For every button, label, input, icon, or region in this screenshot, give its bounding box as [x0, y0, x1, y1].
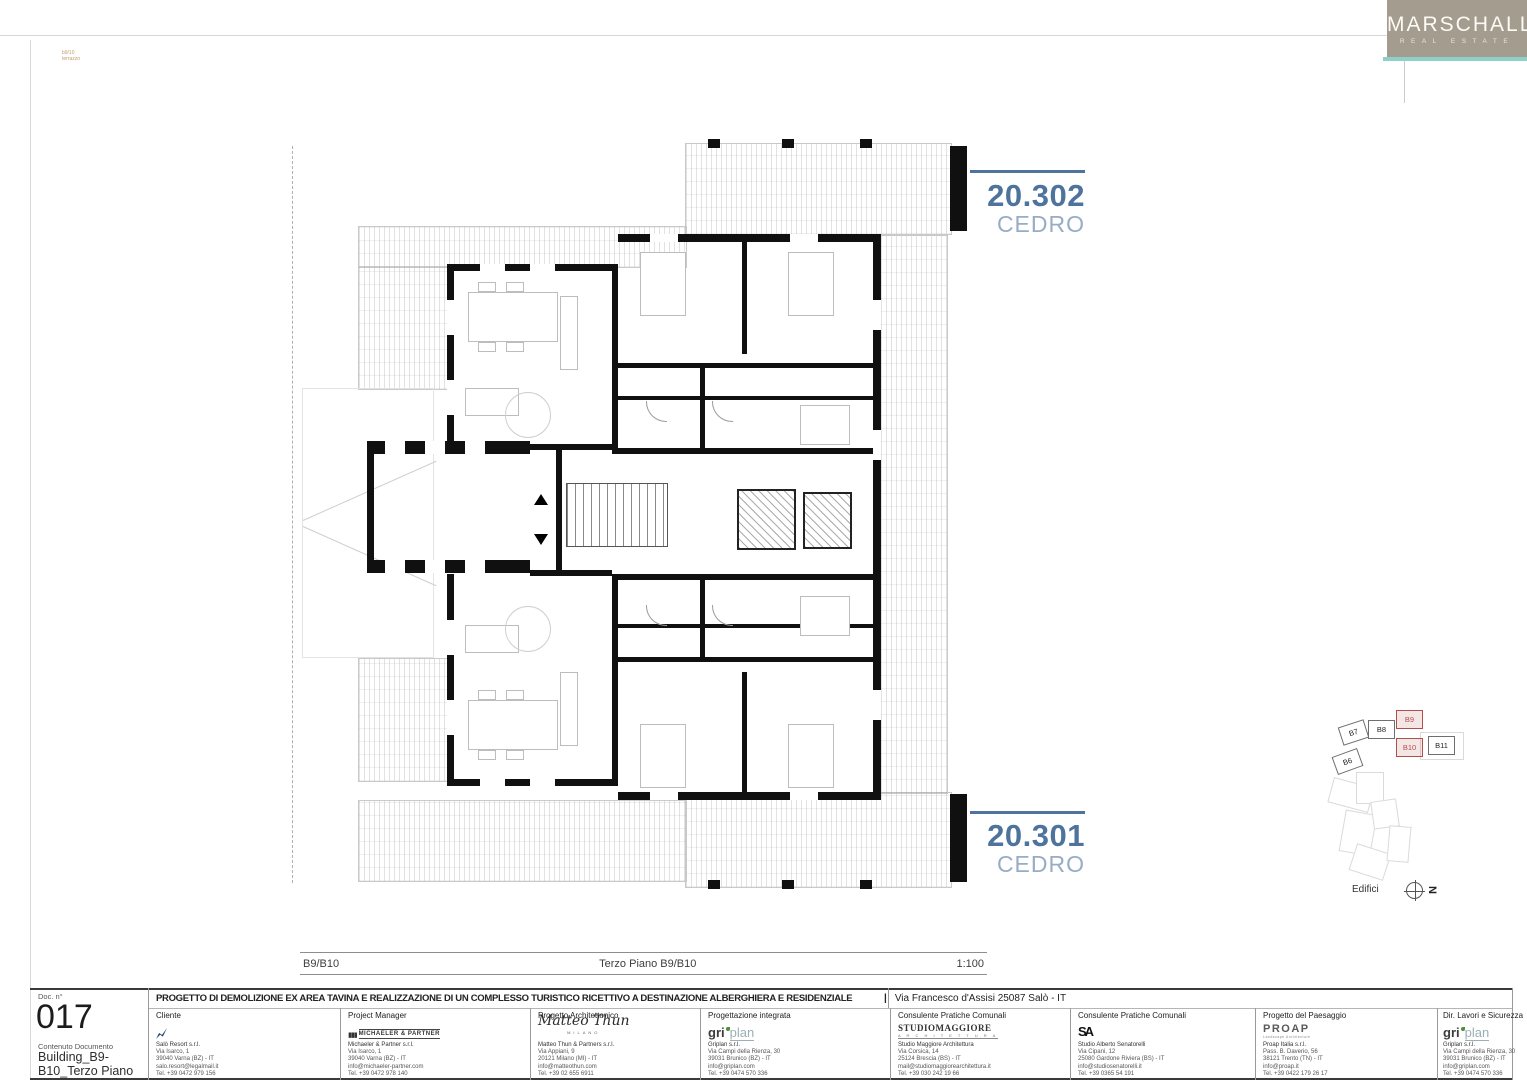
address-line: 38121 Trento (TN) - IT [1263, 1056, 1433, 1063]
window-gap [385, 441, 405, 454]
chair [478, 690, 496, 700]
rug [505, 392, 551, 438]
chair [506, 690, 524, 700]
org-name: Griplan s.r.l. [708, 1042, 886, 1049]
titleblock-separator [890, 1008, 891, 1080]
consultant-column-pratiche-2: Consulente Pratiche Comunali SA Studio A… [1078, 1011, 1250, 1078]
unit-code: 20.302 [977, 178, 1085, 214]
chimney [708, 139, 720, 148]
north-compass-icon [1406, 882, 1423, 899]
window-gap [480, 779, 505, 786]
org-name: Michaeler & Partner s.r.l. [348, 1042, 526, 1049]
address-line: 20121 Milano (MI) - IT [538, 1056, 696, 1063]
wall [612, 574, 881, 580]
column-role: Progettazione integrata [708, 1011, 886, 1020]
site-building-label: B11 [1435, 741, 1448, 750]
window-gap [650, 234, 678, 242]
address-line: Via Appiani, 9 [538, 1049, 696, 1056]
address-line: salo.resort@legalmail.it [156, 1064, 336, 1071]
staircase [566, 483, 668, 547]
chimney [860, 880, 872, 889]
org-name: Proap Italia s.r.l. [1263, 1042, 1433, 1049]
elevator-shaft [803, 492, 852, 549]
roof-hatch [358, 658, 449, 782]
window-gap [465, 441, 485, 454]
wall [742, 672, 747, 800]
address-line: 39040 Varna (BZ) - IT [156, 1056, 336, 1063]
address-line: Via Cipani, 12 [1078, 1049, 1250, 1056]
address-line: Via Isarco, 1 [348, 1049, 526, 1056]
wall [447, 264, 454, 448]
site-building-outline [1386, 825, 1411, 863]
consultant-column-paesaggio: Progetto del Paesaggio PROAPLandscape Ar… [1263, 1011, 1433, 1078]
address-line: Via Campi della Rienza, 30 [708, 1049, 886, 1056]
studiomaggiore-logo: STUDIOMAGGIOREA R C H I T E T T U R A [898, 1023, 998, 1039]
chair [478, 750, 496, 760]
wall [742, 234, 747, 354]
proap-logo: PROAPLandscape Architecture [1263, 1023, 1311, 1039]
bed [640, 724, 686, 788]
address-line: Via Corsica, 14 [898, 1049, 1066, 1056]
site-building-b6: B6 [1332, 748, 1364, 775]
address-line: info@griplan.com [708, 1064, 886, 1071]
bed [788, 724, 834, 788]
address-line: info@matteothun.com [538, 1064, 696, 1071]
wall [530, 570, 612, 576]
site-building-outline [1356, 772, 1384, 804]
window-gap [425, 441, 445, 454]
roof-hatch [358, 266, 449, 390]
terrace-end-wall [950, 146, 967, 231]
michaeler-logo-icon: ▮▮▮ [348, 1031, 357, 1039]
wall [447, 574, 454, 786]
griplan-logo: griplan [1443, 1027, 1489, 1039]
chimney [782, 880, 794, 889]
column-role: Cliente [156, 1011, 336, 1020]
address-line: Via Campi della Rienza, 30 [1443, 1049, 1509, 1056]
rug [505, 606, 551, 652]
bed [788, 252, 834, 316]
bed [640, 252, 686, 316]
chimney [708, 880, 720, 889]
chimney [860, 139, 872, 148]
chair [506, 282, 524, 292]
project-title-divider: | [884, 993, 887, 1004]
doc-number: 017 [36, 998, 93, 1037]
titleblock-separator [1070, 1008, 1071, 1080]
wall [618, 396, 873, 400]
callout-line [970, 170, 1085, 173]
project-title: PROGETTO DI DEMOLIZIONE EX AREA TAVINA E… [156, 993, 884, 1004]
titleblock-separator [530, 1008, 531, 1080]
site-building-label: B9 [1405, 715, 1414, 724]
michaeler-logo: MICHAELER & PARTNER [359, 1029, 440, 1039]
kitchen-counter [560, 296, 578, 370]
site-building-label: B6 [1342, 756, 1354, 768]
chair [478, 282, 496, 292]
site-building-label: B7 [1348, 727, 1360, 738]
consultant-column-cliente: Cliente Salò Resort s.r.l. Via Isarco, 1… [156, 1011, 336, 1078]
wall [612, 574, 618, 779]
window-gap [530, 264, 555, 271]
address-line: 25080 Gardone Riviera (BS) - IT [1078, 1056, 1250, 1063]
wall [700, 576, 705, 661]
titleblock-right-border [1512, 988, 1513, 1080]
griplan-logo: griplan [708, 1027, 754, 1039]
drawing-sheet: b9/10 terrazzo MARSCHALL REAL ESTATE [0, 0, 1527, 1080]
bed [800, 405, 850, 445]
column-role: Consulente Pratiche Comunali [1078, 1011, 1250, 1020]
kitchen-counter [560, 672, 578, 746]
address-line: Tel. +39 0474 570 336 [708, 1071, 886, 1078]
address-line: Tel. +39 0422 179 26 17 [1263, 1071, 1433, 1078]
address-line: Tel. +39 0472 979 156 [156, 1071, 336, 1078]
window-gap [480, 264, 505, 271]
scale-bar-center: Terzo Piano B9/B10 [599, 958, 696, 970]
site-building-label: B10 [1403, 743, 1416, 752]
direction-arrow-down [534, 534, 548, 545]
wall [618, 363, 873, 368]
unit-code: 20.301 [977, 818, 1085, 854]
content-value-line2: B10_Terzo Piano [38, 1064, 133, 1078]
roof-hatch [685, 792, 952, 888]
consultant-column-architetto: Progetto Architettonico Matteo ThunMILAN… [538, 1011, 696, 1078]
scale-bar: B9/B10 Terzo Piano B9/B10 1:100 [300, 952, 987, 975]
unit-name: CEDRO [977, 851, 1085, 878]
titleblock-separator [700, 1008, 701, 1080]
dining-table [468, 292, 558, 342]
window-gap [425, 560, 445, 573]
chair [478, 342, 496, 352]
window-gap [385, 560, 405, 573]
chair [506, 342, 524, 352]
wall [618, 657, 873, 662]
roof-hatch [685, 143, 952, 235]
address-line: mail@studiomaggiorearchitettura.it [898, 1064, 1066, 1071]
elevator-shaft [737, 489, 796, 550]
roof-hatch [358, 800, 687, 882]
address-line: Tel. +39 0474 570 336 [1443, 1071, 1509, 1078]
boundary-dashed-line [292, 146, 293, 883]
sheet-top-line [0, 35, 1387, 36]
door-arc [712, 401, 733, 422]
wall [530, 444, 612, 450]
address-line: Pass. B. Daverio, 56 [1263, 1049, 1433, 1056]
window-gap [650, 792, 678, 800]
org-name: Matteo Thun & Partners s.r.l. [538, 1042, 696, 1049]
column-role: Progetto del Paesaggio [1263, 1011, 1433, 1020]
titleblock-separator [1437, 1008, 1438, 1080]
dining-table [468, 700, 558, 750]
proap-logo-sub: Landscape Architecture [1263, 1035, 1311, 1039]
org-name: Salò Resort s.r.l. [156, 1042, 336, 1049]
callout-line [970, 811, 1085, 814]
window-gap [873, 300, 881, 330]
site-building-label: B8 [1377, 725, 1386, 734]
wall [556, 448, 562, 574]
window-gap [873, 430, 881, 460]
address-line: Tel. +39 0472 978 140 [348, 1071, 526, 1078]
org-name: Griplan s.r.l. [1443, 1042, 1509, 1049]
sa-monogram-logo: SA [1078, 1024, 1092, 1039]
studiomaggiore-logo-sub: A R C H I T E T T U R A [898, 1033, 998, 1039]
door-arc [646, 605, 667, 626]
site-map-caption: Edifici [1352, 884, 1379, 895]
window-gap [873, 690, 881, 720]
content-value-line1: Building_B9- [38, 1050, 109, 1064]
sheet-left-edge [30, 40, 31, 1080]
org-name: Studio Maggiore Architettura [898, 1042, 1066, 1049]
address-line: Via Isarco, 1 [156, 1049, 336, 1056]
titleblock-separator [340, 1008, 341, 1080]
window-gap [447, 700, 454, 735]
project-address: Via Francesco d'Assisi 25087 Salò - IT [895, 993, 1066, 1004]
door-arc [646, 401, 667, 422]
org-name: Studio Alberto Senatorelli [1078, 1042, 1250, 1049]
unit-label-top: 20.302 CEDRO [977, 178, 1085, 238]
address-line: Tel. +39 02 655 6911 [538, 1071, 696, 1078]
chair [506, 750, 524, 760]
column-role: Project Manager [348, 1011, 526, 1020]
brand-accent-bar [1383, 57, 1527, 61]
window-gap [447, 380, 454, 415]
address-line: info@proap.it [1263, 1064, 1433, 1071]
corner-stamp: b9/10 terrazzo [62, 50, 80, 62]
wall [612, 264, 618, 448]
brand-tagline: REAL ESTATE [1387, 38, 1527, 45]
window-gap [530, 779, 555, 786]
scale-bar-right: 1:100 [956, 958, 984, 970]
chimney [782, 139, 794, 148]
address-line: info@griplan.com [1443, 1064, 1509, 1071]
address-line: Tel. +39 0365 54 191 [1078, 1071, 1250, 1078]
corner-stamp-line2: terrazzo [62, 56, 80, 62]
sheet-fold-line [1404, 61, 1405, 103]
site-building-b10: B10 [1396, 738, 1423, 757]
bed [800, 596, 850, 636]
brand-name: MARSCHALL [1387, 13, 1527, 37]
address-line: Tel. +39 030 242 19 66 [898, 1071, 1066, 1078]
project-title-strip: PROGETTO DI DEMOLIZIONE EX AREA TAVINA E… [156, 988, 1506, 1008]
titleblock-strip-border [148, 1008, 1512, 1009]
column-role: Consulente Pratiche Comunali [898, 1011, 1066, 1020]
direction-arrow-up [534, 494, 548, 505]
client-logo-icon [156, 1028, 167, 1039]
consultant-column-integrata: Progettazione integrata griplan Griplan … [708, 1011, 886, 1078]
site-building-outline [1349, 843, 1392, 881]
site-building-b8: B8 [1368, 720, 1395, 739]
column-role: Dir. Lavori e Sicurezza [1443, 1011, 1509, 1020]
address-line: 39031 Brunico (BZ) - IT [1443, 1056, 1509, 1063]
matteo-thun-logo: Matteo ThunMILANO [538, 1015, 630, 1039]
consultant-column-pratiche-1: Consulente Pratiche Comunali STUDIOMAGGI… [898, 1011, 1066, 1078]
window-gap [447, 300, 454, 335]
address-line: info@michaeler-partner.com [348, 1064, 526, 1071]
roof-hatch [880, 235, 948, 794]
door-arc [712, 605, 733, 626]
window-gap [447, 620, 454, 655]
consultant-column-sicurezza: Dir. Lavori e Sicurezza griplan Griplan … [1443, 1011, 1509, 1078]
site-building-b11: B11 [1428, 736, 1455, 755]
wall [612, 448, 881, 454]
site-building-b7: B7 [1338, 719, 1370, 745]
address-line: 39040 Varna (BZ) - IT [348, 1056, 526, 1063]
wall [700, 363, 705, 448]
brand-logo: MARSCHALL REAL ESTATE [1387, 0, 1527, 57]
address-line: 39031 Brunico (BZ) - IT [708, 1056, 886, 1063]
window-gap [790, 234, 818, 242]
site-building-b9: B9 [1396, 710, 1423, 729]
scale-bar-left: B9/B10 [303, 958, 339, 970]
window-gap [465, 560, 485, 573]
consultant-column-project-manager: Project Manager ▮▮▮MICHAELER & PARTNER M… [348, 1011, 526, 1078]
north-label: N [1426, 886, 1438, 894]
titleblock-separator [148, 988, 149, 1080]
unit-name: CEDRO [977, 211, 1085, 238]
address-line: 25124 Brescia (BS) - IT [898, 1056, 1066, 1063]
window-gap [790, 792, 818, 800]
unit-label-bottom: 20.301 CEDRO [977, 818, 1085, 878]
titleblock-separator [1255, 1008, 1256, 1080]
address-line: info@studiosenatorelli.it [1078, 1064, 1250, 1071]
wall [367, 441, 374, 573]
terrace-end-wall [950, 794, 967, 882]
roof-hatch [358, 226, 687, 268]
